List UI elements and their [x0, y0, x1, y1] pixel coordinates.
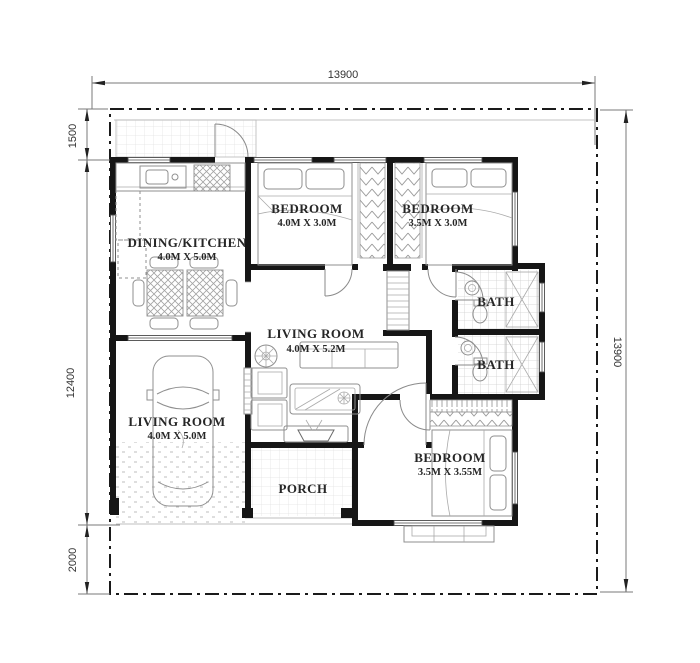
opening-dining-living	[245, 282, 251, 332]
door-bedroom2	[428, 269, 456, 297]
hall-cabinet-icon	[387, 271, 409, 330]
room-porch: PORCH	[279, 481, 328, 496]
stove-icon	[194, 165, 230, 191]
wardrobe-icon	[358, 163, 385, 258]
wardrobe-icon	[430, 400, 512, 426]
window-bedroom1-top	[254, 158, 312, 163]
room-living: LIVING ROOM 4.0M X 5.2M	[244, 271, 409, 442]
dimension-left-upper-label: 1500	[67, 124, 79, 148]
bedroom3-size: 3.5M X 3.55M	[418, 467, 482, 478]
driveway-hatch	[116, 442, 245, 524]
garage-living-size: 4.0M X 5.0M	[148, 431, 207, 442]
window-bedroom2-top	[424, 158, 482, 163]
window-bedroom3-bottom	[394, 521, 482, 526]
dimension-left-lower-label: 2000	[67, 548, 79, 572]
window-dining-left	[111, 215, 116, 262]
bedroom2-size: 3.5M X 3.0M	[409, 218, 468, 229]
window-bath-lower-right	[540, 342, 545, 372]
dimension-right-label: 13900	[611, 337, 623, 368]
living-room-size: 4.0M X 5.2M	[287, 344, 346, 355]
bedroom1-size: 4.0M X 3.0M	[278, 218, 337, 229]
garage-living-label: LIVING ROOM	[128, 414, 225, 429]
planter-box	[404, 526, 494, 542]
porch-label: PORCH	[279, 481, 328, 496]
coffee-table-icon	[290, 384, 360, 414]
dimension-top-label: 13900	[328, 69, 359, 81]
window-bedroom2-right	[513, 192, 518, 246]
room-bedroom-3: BEDROOM 3.5M X 3.55M	[414, 400, 512, 516]
bedroom3-label: BEDROOM	[414, 450, 485, 465]
room-dining-kitchen: DINING/KITCHEN 4.0M X 5.0M	[116, 163, 247, 329]
living-room-label: LIVING ROOM	[267, 326, 364, 341]
dining-kitchen-size: 4.0M X 5.0M	[158, 252, 217, 263]
kitchen-sink-icon	[140, 166, 186, 188]
window-dining-garage-divider	[128, 336, 232, 341]
window-bedroom3-right	[513, 452, 518, 504]
room-bedroom-2: BEDROOM 3.5M X 3.0M	[395, 163, 512, 265]
bedroom1-label: BEDROOM	[271, 201, 342, 216]
floor-plan-drawing: 13900 13900 1500 12400 2000	[0, 0, 700, 663]
door-front	[364, 383, 426, 445]
bath-lower-label: BATH	[477, 357, 514, 372]
floor-plan-page: 13900 13900 1500 12400 2000	[0, 0, 700, 663]
door-bedroom1	[325, 269, 352, 296]
window-closet-top	[334, 158, 386, 163]
dining-kitchen-label: DINING/KITCHEN	[127, 235, 246, 250]
window-bath-upper-right	[540, 283, 545, 312]
plant-icon	[255, 345, 277, 367]
tv-icon	[284, 420, 348, 442]
dimension-left-middle-label: 12400	[65, 368, 77, 399]
room-bedroom-1: BEDROOM 4.0M X 3.0M	[258, 163, 385, 265]
window-kitchen-top	[128, 158, 170, 163]
bath-upper-label: BATH	[477, 294, 514, 309]
armchair-icon	[251, 368, 287, 430]
bedroom2-label: BEDROOM	[402, 201, 473, 216]
dining-table-icon	[133, 257, 237, 329]
service-strip-tiles	[116, 120, 256, 157]
